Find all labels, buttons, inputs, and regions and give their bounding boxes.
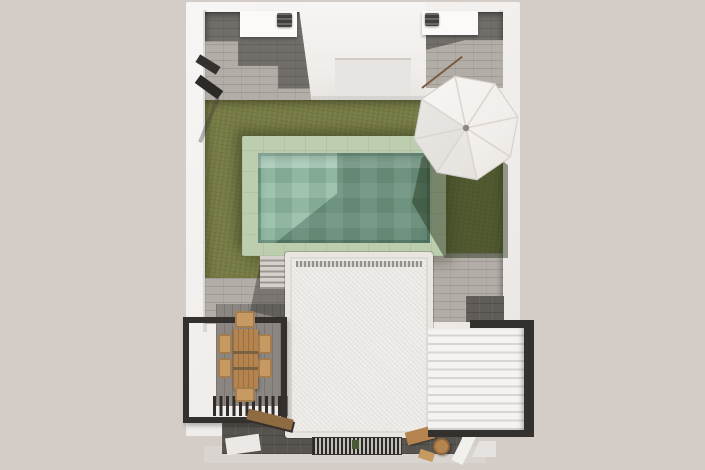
paving-right-dark [466,296,504,322]
table-seam [233,367,258,370]
pergola-right [428,320,534,437]
pool-water [258,153,430,243]
villa-top-view-render: Aerial top view 3D render of a modern vi… [0,0,705,470]
grate-green-detail [352,440,359,449]
roof-vent-strip [296,261,422,267]
wood-stool [433,438,450,455]
dining-chair-right-2 [258,358,272,378]
dining-chair-right-1 [258,334,272,354]
main-roof [285,252,433,438]
ac-unit-right [425,13,439,26]
dining-chair-bottom [235,387,255,402]
balcony-recess [335,58,411,100]
table-seam [233,351,258,354]
patio-umbrella [412,74,520,182]
center-building-volume [295,2,426,104]
dining-chair-left-1 [218,334,232,354]
umbrella-pole-top [463,125,469,131]
pergola-right-slats [428,328,524,430]
dining-chair-top [235,311,255,328]
dining-table [233,329,258,389]
dining-chair-left-2 [218,358,232,378]
wall-wedge-right-2 [472,441,496,457]
ac-unit-left [277,13,292,27]
pergola-right-frame-bottom [428,430,534,437]
pergola-right-frame-side [524,320,534,437]
